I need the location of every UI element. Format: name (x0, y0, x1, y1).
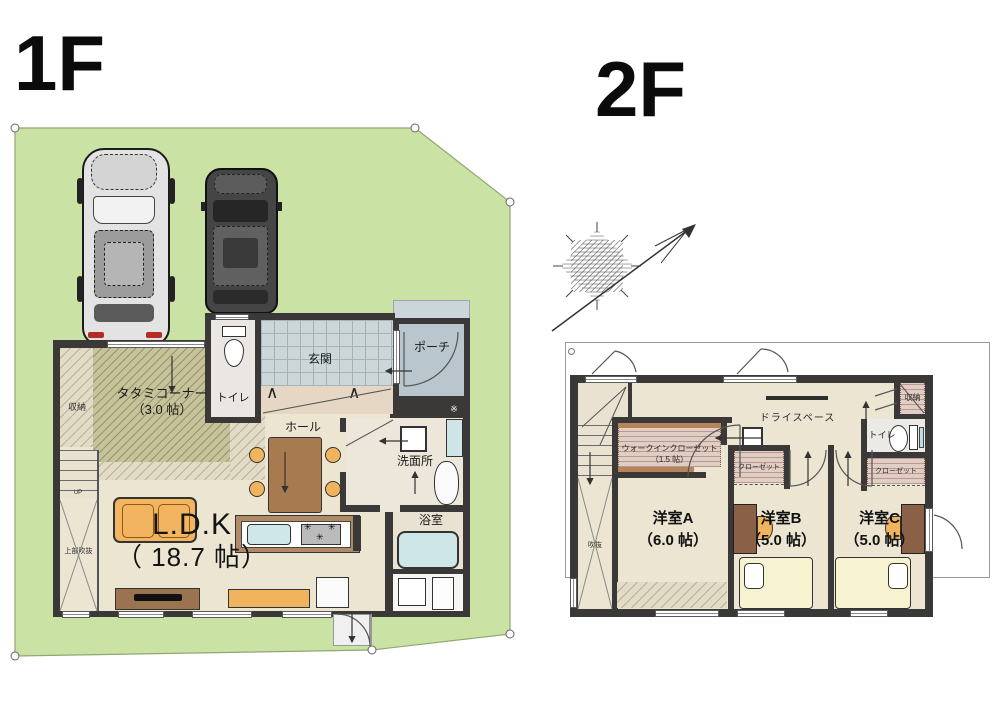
f1-storage-label: 収納 (58, 400, 96, 413)
f2-toilet-label: トイレ (862, 428, 902, 441)
f1-wall-wash-bath-l (346, 505, 380, 512)
stove-burner: ✳ (304, 522, 312, 533)
bed-room-b (739, 557, 813, 609)
tv (134, 594, 182, 601)
toilet-tank-2f (909, 425, 918, 450)
pillow (888, 563, 908, 589)
f1-bath-label: 浴室 (405, 513, 457, 528)
f2-roomB-label: 洋室B （5.0 帖） (734, 508, 828, 552)
floor-plan-canvas: 1F 2F ∧ ∧ (0, 0, 1000, 707)
north-arrow (552, 222, 696, 331)
f2-wic-wall-bottom (612, 472, 706, 478)
window (118, 611, 164, 618)
window (215, 314, 249, 320)
f1-washroom-door-gap (340, 432, 346, 472)
f2-storage-label: 収納 (900, 392, 925, 403)
f1-back-door-landing (333, 614, 372, 646)
kitchen-cart (316, 577, 349, 608)
f2-closet-c-label: クローゼット (867, 466, 925, 476)
stove-burner: ✳ (328, 522, 336, 533)
f1-up-label: UP (68, 490, 88, 496)
sideboard (228, 589, 310, 608)
f1-void-label: 上部吹抜 (60, 546, 97, 556)
car-white-suv (82, 148, 170, 346)
f2-roomA-rug (617, 582, 727, 608)
window (107, 341, 205, 348)
f2-roomC-label: 洋室C （5.0 帖） (834, 508, 925, 552)
car-dark-minivan (205, 168, 278, 314)
window (655, 610, 719, 617)
f2-wic-label: ウォークインクローゼット （1.5 帖） (618, 443, 721, 465)
window (282, 611, 332, 618)
window (570, 578, 577, 608)
f1-entrance-step (261, 386, 393, 414)
window (585, 376, 637, 383)
window (723, 376, 797, 383)
window (737, 610, 785, 617)
f1-wall-wash-bath-r (400, 505, 463, 512)
shoe-cabinet-mark-1: ∧ (266, 384, 278, 401)
f2-closetB-wall-right (784, 445, 790, 489)
utility-washer (398, 578, 426, 606)
bed-room-c (835, 557, 911, 609)
tv-board (115, 588, 200, 610)
f2-dryspace-label: ドライスペース (735, 409, 860, 424)
f1-washroom-label: 洗面所 (370, 454, 460, 469)
f2-closetB-open-edge (734, 484, 784, 486)
f2-closetC-open-edge (867, 485, 925, 487)
f2-hall-box (742, 427, 763, 447)
f1-ldk-label: L.D.K （ 18.7 帖） (92, 508, 292, 572)
vent-box: ※ (440, 402, 468, 416)
bathtub (397, 531, 459, 569)
balcony-door (925, 508, 933, 552)
window (850, 610, 888, 617)
floor1-title: 1F (14, 24, 105, 102)
porch-roof (393, 300, 470, 320)
utility-unit (432, 577, 454, 610)
dining-table (268, 437, 322, 513)
vanity-sink (446, 419, 463, 457)
f2-roomA-label: 洋室A （6.0 帖） (618, 508, 728, 552)
pillow (744, 563, 764, 589)
shoe-cabinet-mark-2: ∧ (348, 384, 360, 401)
toilet-tank-1f (222, 326, 246, 337)
toilet-cistern-blue (919, 427, 924, 448)
f1-toilet-label: トイレ (207, 392, 259, 406)
f1-porch-label: ポーチ (404, 340, 460, 355)
stove-burner: ✳ (316, 532, 324, 543)
dining-chair (325, 447, 341, 463)
vent-mark: ※ (450, 404, 458, 414)
f1-entrance-label: 玄関 (295, 352, 345, 367)
washroom-cabinet (400, 426, 427, 452)
window (192, 611, 252, 618)
entrance-door (393, 330, 400, 384)
f1-porch (399, 324, 464, 396)
dining-chair (249, 481, 265, 497)
f1-storage-room (60, 348, 93, 447)
dining-chair (325, 481, 341, 497)
f2-drying-rod (766, 396, 828, 400)
f1-hall-label: ホール (258, 420, 348, 435)
dining-chair (249, 447, 265, 463)
f2-wic-wall-right (721, 417, 727, 445)
f2-closet-b-label: クローゼット (734, 462, 784, 472)
f2-void-label: 吹抜 (578, 540, 612, 550)
f2-outline-marker (568, 348, 575, 355)
floor2-title: 2F (595, 50, 686, 128)
window (62, 611, 90, 618)
